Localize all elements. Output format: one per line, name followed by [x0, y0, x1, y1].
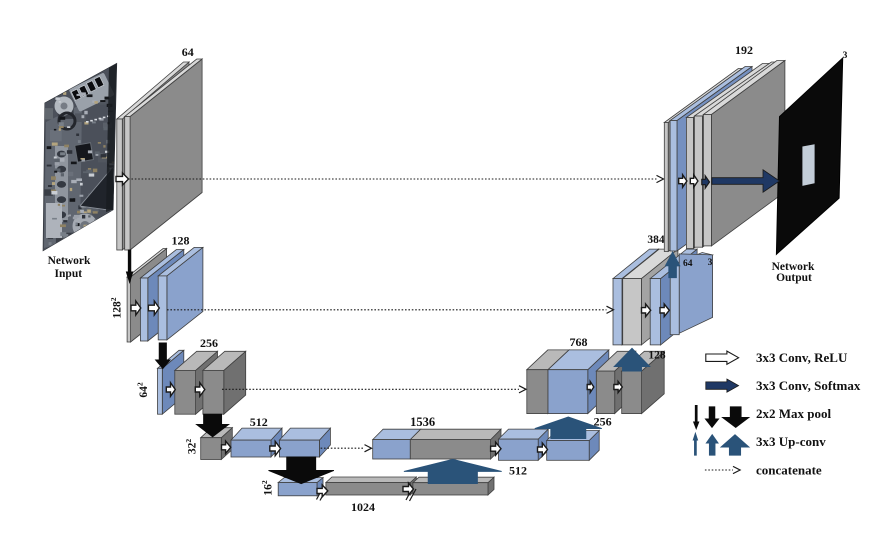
svg-text:concatenate: concatenate [756, 463, 822, 478]
svg-text:1536: 1536 [410, 415, 435, 429]
svg-text:1024: 1024 [351, 500, 375, 514]
svg-text:64: 64 [182, 45, 194, 59]
svg-text:2x2 Max pool: 2x2 Max pool [756, 406, 832, 421]
svg-text:3: 3 [708, 258, 713, 268]
svg-text:64: 64 [683, 259, 693, 269]
svg-text:512: 512 [250, 415, 268, 429]
svg-text:192: 192 [735, 43, 753, 57]
svg-text:3x3 Conv, Softmax: 3x3 Conv, Softmax [756, 378, 861, 393]
svg-text:128: 128 [172, 233, 190, 247]
svg-text:Network: Network [48, 255, 91, 267]
svg-text:3x3 Conv, ReLU: 3x3 Conv, ReLU [756, 350, 848, 365]
svg-text:3: 3 [843, 51, 848, 61]
svg-text:Output: Output [776, 272, 812, 284]
svg-text:128: 128 [648, 350, 666, 362]
svg-text:Input: Input [55, 268, 83, 280]
svg-text:512: 512 [509, 464, 527, 478]
svg-text:768: 768 [570, 335, 588, 349]
svg-text:384: 384 [647, 234, 665, 246]
svg-text:256: 256 [200, 336, 218, 350]
svg-text:3x3 Up-conv: 3x3 Up-conv [756, 434, 826, 449]
